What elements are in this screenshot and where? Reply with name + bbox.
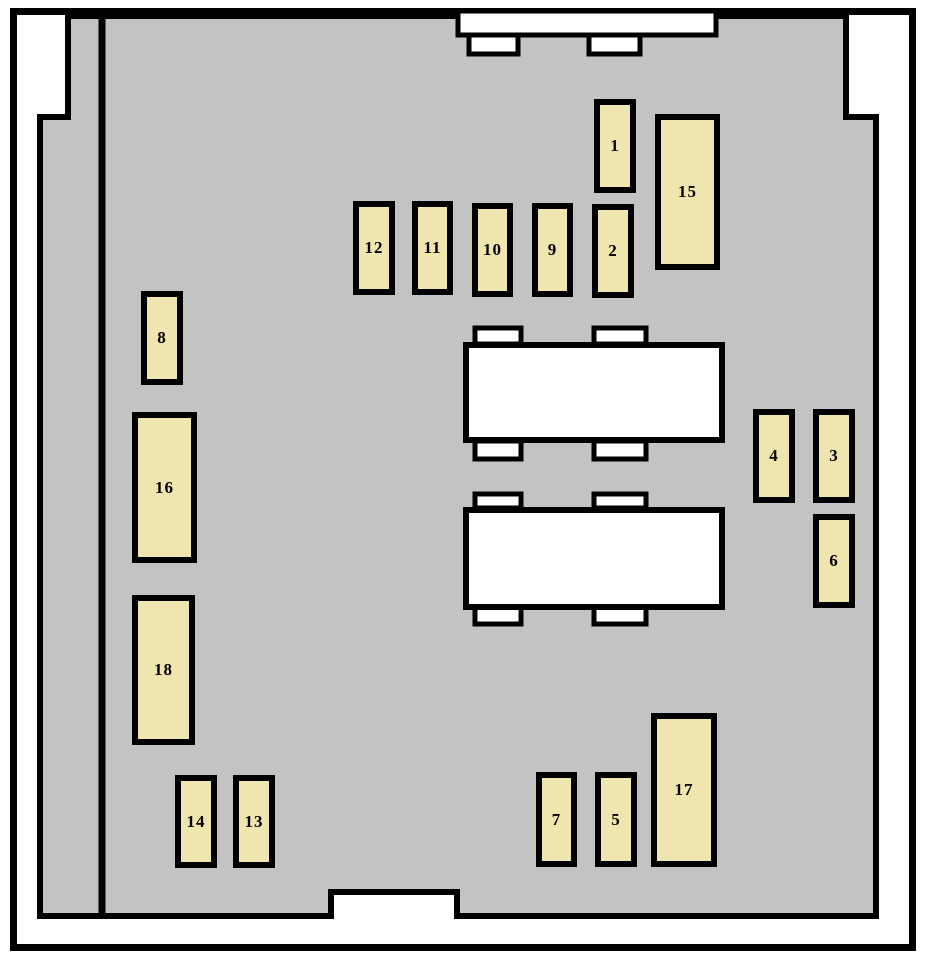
- fuse-14: 14: [175, 775, 217, 868]
- fuse-15: 15: [655, 114, 720, 270]
- fuse-5: 5: [595, 772, 637, 867]
- relay-block-1: [466, 345, 722, 440]
- relay-block-1-tab-top-right: [594, 328, 646, 344]
- top-tab-large: [458, 11, 716, 35]
- fuse-10: 10: [472, 203, 513, 297]
- fuse-12: 12: [353, 201, 395, 295]
- relay-block-2: [466, 510, 722, 607]
- fuse-box-diagram: 1 2 3 4 5 6 7 8 9 10 11 12 13 14 15 16 1…: [0, 0, 930, 966]
- relay-block-1-tab-top-left: [475, 328, 521, 344]
- fuse-9: 9: [532, 203, 573, 297]
- fuse-18: 18: [132, 595, 195, 745]
- fuse-11: 11: [412, 201, 453, 295]
- fuse-3: 3: [813, 409, 855, 503]
- fuse-7: 7: [536, 772, 577, 867]
- fuse-2: 2: [592, 204, 634, 298]
- fuse-8: 8: [141, 291, 183, 385]
- fuse-4: 4: [753, 409, 795, 503]
- relay-block-1-tab-bottom-left: [475, 441, 521, 459]
- relay-block-2-tab-top-right: [594, 494, 646, 508]
- relay-block-1-tab-bottom-right: [594, 441, 646, 459]
- fuse-17: 17: [651, 713, 717, 867]
- relay-block-2-tab-top-left: [475, 494, 521, 508]
- fuse-1: 1: [594, 99, 636, 193]
- fuse-13: 13: [233, 775, 275, 868]
- fuse-6: 6: [813, 514, 855, 608]
- top-tab-small-right: [589, 35, 640, 54]
- fuse-16: 16: [132, 412, 197, 563]
- top-tab-small-left: [469, 35, 518, 54]
